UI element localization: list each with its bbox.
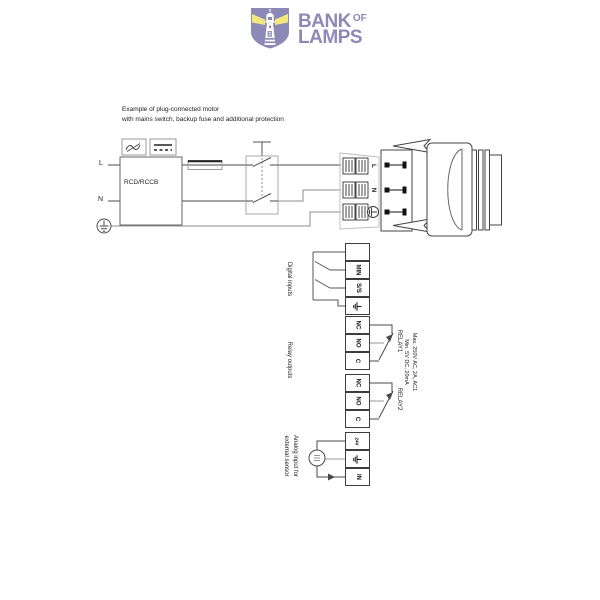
terminal-24v: 24V	[345, 432, 370, 450]
earth-ground-icon	[352, 454, 363, 465]
mains-l-label: L	[99, 160, 103, 167]
plug-earth-icon	[368, 207, 379, 218]
mains-switch	[246, 142, 278, 214]
mains-n-label: N	[98, 196, 103, 203]
rcd-label: RCD/RCCB	[124, 179, 158, 186]
caption-line-1: Example of plug-connected motor	[122, 105, 284, 115]
plug-l-label: L	[370, 164, 376, 168]
relay1-wiring	[370, 325, 393, 361]
page: BANKOF LAMPS	[0, 0, 600, 600]
relay-rating-max: Max. 250V AC, 2A, AC1	[410, 333, 418, 391]
analog-input-label: Analog input for external sensor	[281, 435, 299, 477]
diagram-caption: Example of plug-connected motor with mai…	[122, 105, 284, 125]
dc-line-icon	[150, 139, 176, 155]
plug-housing	[381, 150, 412, 231]
digital-inputs-label: Digital inputs	[286, 262, 292, 296]
terminal-relay1-no: NO	[345, 334, 370, 352]
ac-wave-icon	[122, 139, 146, 155]
relay-rating-min: Min. 5V DC, 20mA	[402, 333, 410, 391]
terminal-earth-analog	[345, 450, 370, 468]
terminal-relay2-no: NO	[345, 392, 370, 410]
terminal-earth-digital	[345, 297, 370, 315]
earth-ground-icon	[352, 301, 363, 312]
terminal-ss: S/S	[345, 279, 370, 297]
digital-inputs-wiring	[313, 252, 345, 306]
protective-earth-icon	[97, 219, 111, 233]
motor-connector	[427, 143, 502, 236]
plug-n-label: N	[370, 188, 376, 192]
analog-input-wiring	[309, 441, 345, 481]
terminal-in: IN	[345, 468, 370, 486]
rcd-box	[120, 157, 182, 225]
terminal-min: MIN	[345, 261, 370, 279]
sensor-icon	[309, 450, 325, 466]
relay2-wiring	[370, 383, 393, 419]
wiring-diagram	[0, 0, 600, 600]
relay-outputs-label: Relay outputs	[286, 342, 292, 379]
terminal-relay2-c: C	[345, 410, 370, 428]
caption-line-2: with mains switch, backup fuse and addit…	[122, 115, 284, 125]
terminal-relay1-c: C	[345, 352, 370, 370]
terminal-relay1-nc: NC	[345, 316, 370, 334]
relay-rating: Max. 250V AC, 2A, AC1 Min. 5V DC, 20mA	[402, 333, 418, 391]
terminal-blank	[345, 243, 370, 261]
terminal-relay2-nc: NC	[345, 374, 370, 392]
